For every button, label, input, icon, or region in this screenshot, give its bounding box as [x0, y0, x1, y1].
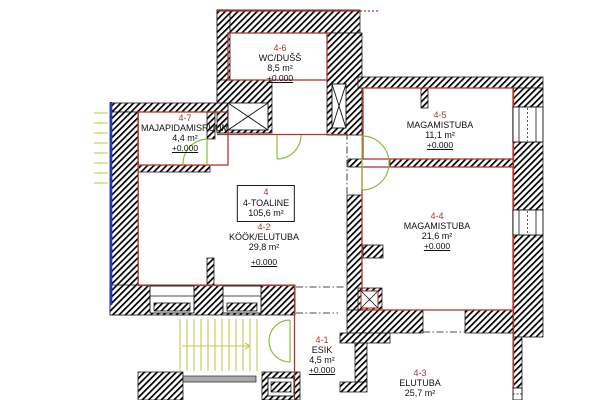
- room-area: 29,8 m²: [229, 242, 299, 252]
- apartment-area: 105,6 m²: [243, 208, 289, 219]
- room-name: KÖÖK/ELUTUBA: [229, 232, 299, 242]
- room-number: 4-7: [141, 113, 229, 123]
- room-label-4-2: 4-2 KÖÖK/ELUTUBA 29,8 m² +0.000: [229, 222, 299, 268]
- shaft-box-tall: [332, 84, 346, 128]
- window-kitchen-left: [150, 286, 194, 313]
- room-name: MAGAMISTUBA: [404, 221, 471, 231]
- room-number: 4-4: [404, 211, 471, 221]
- room-area: 21,6 m²: [404, 231, 471, 241]
- stair-direction-arrow: [182, 343, 250, 349]
- room-label-4-7: 4-7 MAJAPIDAMISRUUM 4,4 m² +0.000: [141, 113, 229, 154]
- room-elevation: +0.000: [309, 366, 335, 376]
- window-kitchen-right: [223, 286, 261, 313]
- room-elevation: +0.000: [259, 74, 302, 84]
- room-name: ESIK: [309, 345, 335, 355]
- room-number: 4-3: [399, 368, 441, 378]
- room-number: 4-5: [407, 110, 474, 120]
- room-elevation: +0.000: [229, 258, 299, 268]
- staircase: [180, 319, 257, 371]
- radiator: [154, 303, 190, 311]
- window-right-bottom-small: [513, 388, 522, 400]
- apartment-type: 4-TOALINE: [243, 198, 289, 209]
- room-label-4-5: 4-5 MAGAMISTUBA 11,1 m² +0.000: [407, 110, 474, 151]
- stair-landing-edge: [183, 376, 256, 382]
- door-bedroom-divider: [362, 136, 389, 190]
- room-area: 11,1 m²: [407, 130, 474, 140]
- shaft-box-hall: [361, 291, 378, 308]
- room-elevation: +0.000: [404, 242, 471, 252]
- room-name: MAGAMISTUBA: [407, 120, 474, 130]
- room-number: 4-2: [229, 222, 299, 232]
- room-name: MAJAPIDAMISRUUM: [141, 123, 229, 133]
- room-label-4-6: 4-6 WC/DUŠŠ 8,5 m² +0.000: [259, 43, 302, 84]
- apartment-summary-box: 4 4-TOALINE 105,6 m²: [237, 185, 295, 222]
- door-esik-entry: [269, 320, 290, 362]
- window-right-lower: [513, 210, 543, 235]
- room-label-4-4: 4-4 MAGAMISTUBA 21,6 m² +0.000: [404, 211, 471, 252]
- room-area: 4,4 m²: [141, 133, 229, 143]
- room-label-4-1: 4-1 ESIK 4,5 m² +0.000: [309, 335, 335, 376]
- door-corridor: [277, 135, 301, 159]
- room-number: 4-1: [309, 335, 335, 345]
- room-elevation: +0.000: [407, 141, 474, 151]
- room-area: 8,5 m²: [259, 63, 302, 73]
- apartment-number: 4: [243, 187, 289, 198]
- window-stairwell-bottom: [268, 378, 294, 396]
- floor-plan-canvas: 4-6 WC/DUŠŠ 8,5 m² +0.000 4-7 MAJAPIDAMI…: [0, 0, 600, 400]
- room-elevation: +0.000: [141, 144, 229, 154]
- window-right-upper: [513, 107, 543, 142]
- room-name: WC/DUŠŠ: [259, 53, 302, 63]
- room-label-4-3: 4-3 ELUTUBA 25,7 m²: [399, 368, 441, 398]
- room-area: 25,7 m²: [399, 388, 441, 398]
- left-edge-ticks: [94, 113, 108, 183]
- shaft-box-left: [228, 103, 268, 130]
- room-name: ELUTUBA: [399, 378, 441, 388]
- room-number: 4-6: [259, 43, 302, 53]
- radiator: [227, 303, 257, 311]
- room-area: 4,5 m²: [309, 355, 335, 365]
